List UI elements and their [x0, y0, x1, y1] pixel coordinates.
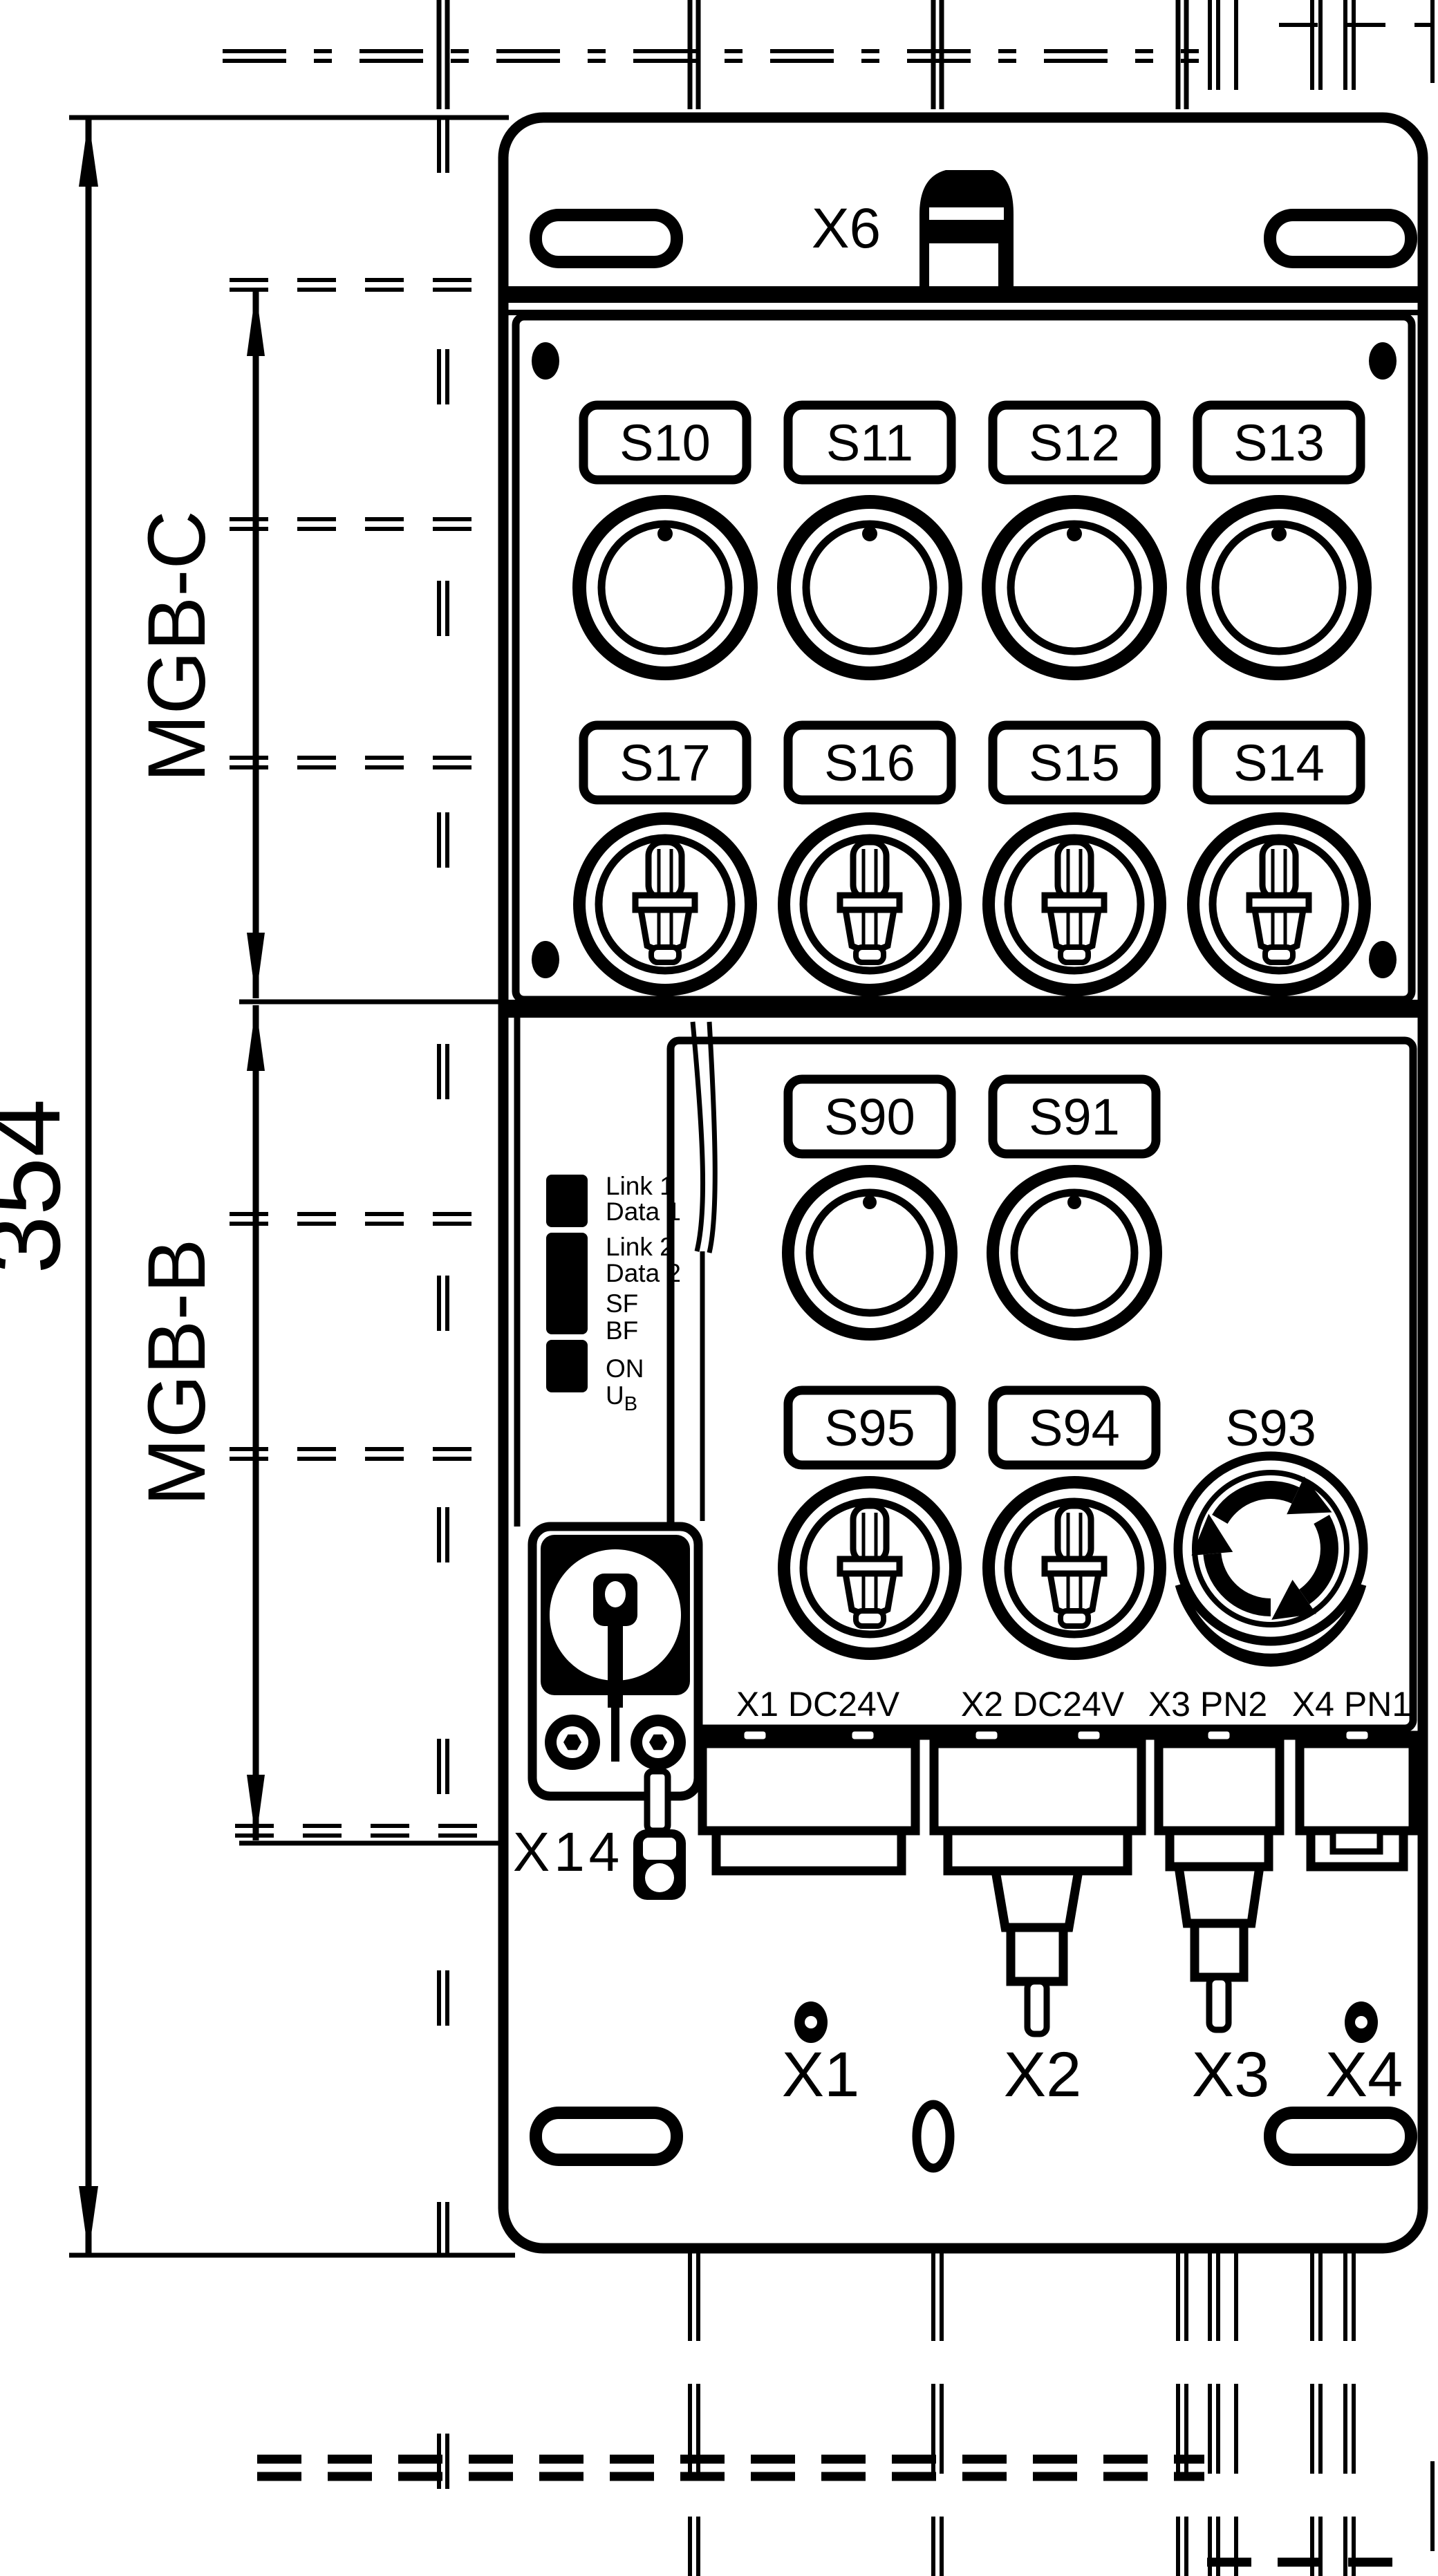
dimension-354-label: 354 [0, 1099, 82, 1274]
dimension-mgb-b: MGB-B [131, 1005, 534, 1843]
connector-block-x1 [702, 1728, 915, 1871]
mounting-slot-bottom-left [536, 2113, 677, 2160]
mgb-gate-box-drawing: 354 MGB-C MGB-B X6 [0, 0, 1438, 2576]
plate-label-s95: S95 [824, 1399, 915, 1457]
screw-hole-right [1345, 2001, 1378, 2043]
mgb-c-panel: S10 S11 S12 S13 S17 S16 S15 S14 [516, 317, 1412, 1000]
port-label-x4pn1: X4 PN1 [1292, 1685, 1411, 1724]
plug-label-x1: X1 [782, 2040, 860, 2110]
mounting-slot-top-right [1270, 215, 1411, 262]
push-button-s90 [788, 1171, 951, 1334]
plate-label-s91: S91 [1029, 1088, 1120, 1146]
plug-label-x4: X4 [1325, 2040, 1403, 2110]
key-switch-s94 [989, 1482, 1160, 1654]
panel-screw [532, 941, 559, 978]
led-label-data2: Data 2 [606, 1259, 681, 1287]
push-button-s10 [579, 502, 751, 673]
key-fob [633, 1829, 686, 1900]
module-divider [503, 1000, 1423, 1018]
port-label-x1dc24v: X1 DC24V [736, 1685, 900, 1724]
plate-label-s17: S17 [619, 734, 711, 792]
led-bar-2 [546, 1233, 588, 1334]
plate-label-s16: S16 [824, 734, 915, 792]
plate-label-s90: S90 [824, 1088, 915, 1146]
drawing-page: 354 MGB-C MGB-B X6 [0, 0, 1438, 2576]
led-label-link1: Link 1 [606, 1172, 674, 1200]
center-hole [917, 2104, 950, 2168]
panel-screw [1369, 941, 1397, 978]
led-label-ub-main: U [606, 1381, 624, 1410]
panel-screw [1369, 342, 1397, 380]
emergency-stop-s93 [1178, 1456, 1363, 1663]
connector-block-x4 [1300, 1728, 1413, 1867]
port-label-x3pn2: X3 PN2 [1148, 1685, 1267, 1724]
led-label-sf: SF [606, 1289, 638, 1318]
plate-label-s11: S11 [826, 414, 913, 472]
key-switch-s16 [784, 819, 955, 990]
push-button-s12 [989, 502, 1160, 673]
led-bar-1 [546, 1175, 588, 1227]
lock-screw [631, 1715, 686, 1770]
led-label-ub-sub: B [624, 1393, 637, 1415]
plate-label-s12: S12 [1029, 414, 1120, 472]
key-switch-s95 [784, 1482, 955, 1654]
plug-label-x2: X2 [1004, 2040, 1082, 2110]
mounting-slot-bottom-right [1270, 2113, 1411, 2160]
key-switch-s15 [989, 819, 1160, 990]
dimension-mgb-c: MGB-C [131, 290, 506, 1002]
plate-label-s94: S94 [1029, 1399, 1120, 1457]
push-button-s11 [784, 502, 955, 673]
plate-label-s13: S13 [1233, 414, 1325, 472]
mounting-slot-top-left [536, 215, 677, 262]
estop-label-s93: S93 [1225, 1399, 1316, 1457]
screw-hole-left [794, 2001, 828, 2043]
plate-label-s15: S15 [1029, 734, 1120, 792]
plate-label-s14: S14 [1233, 734, 1325, 792]
push-button-s13 [1193, 502, 1365, 673]
led-label-bf: BF [606, 1316, 638, 1345]
connector-x6-label: X6 [812, 197, 881, 260]
led-label-on: ON [606, 1354, 644, 1383]
push-button-s91 [993, 1171, 1156, 1334]
led-label-link2: Link 2 [606, 1233, 674, 1261]
cover-panel-divider [503, 286, 1423, 303]
key-switch-s14 [1193, 819, 1365, 990]
key-switch-s17 [579, 819, 751, 990]
port-label-x2dc24v: X2 DC24V [961, 1685, 1125, 1724]
plug-label-x3: X3 [1192, 2040, 1270, 2110]
lock-screw [545, 1715, 600, 1770]
section-label-mgb-c: MGB-C [131, 510, 223, 782]
lock-module-x14: X14 [513, 1527, 698, 1900]
led-bar-3 [546, 1340, 588, 1392]
plate-label-s10: S10 [619, 414, 711, 472]
lock-label-x14: X14 [513, 1821, 624, 1883]
key-lanyard [647, 1771, 668, 1831]
panel-screw [532, 342, 559, 380]
section-label-mgb-b: MGB-B [131, 1239, 223, 1506]
led-label-data1: Data 1 [606, 1197, 681, 1226]
